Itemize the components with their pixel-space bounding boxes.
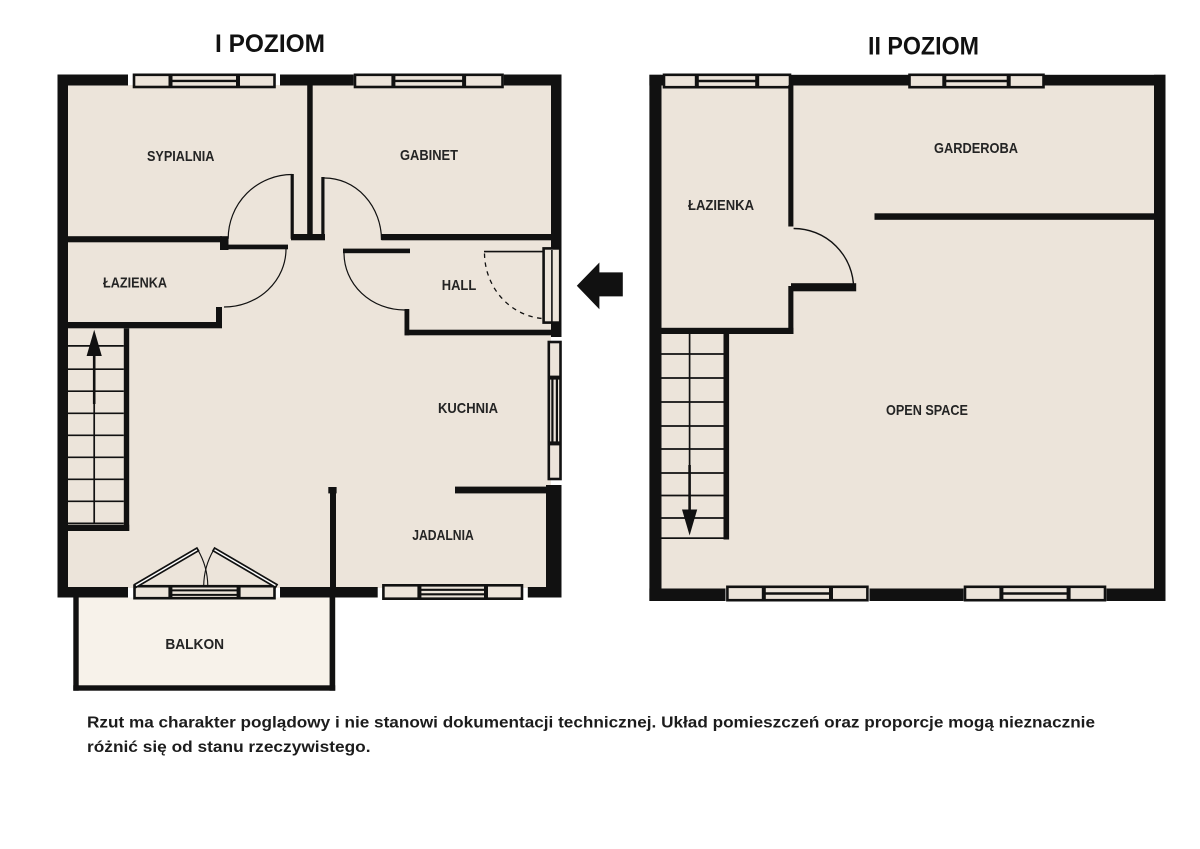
svg-text:ŁAZIENKA: ŁAZIENKA xyxy=(103,274,167,291)
svg-text:JADALNIA: JADALNIA xyxy=(412,527,474,544)
svg-text:II POZIOM: II POZIOM xyxy=(868,33,979,61)
svg-text:ŁAZIENKA: ŁAZIENKA xyxy=(688,197,754,214)
svg-text:I POZIOM: I POZIOM xyxy=(215,30,325,58)
svg-text:GABINET: GABINET xyxy=(400,147,458,164)
svg-text:SYPIALNIA: SYPIALNIA xyxy=(147,148,215,165)
svg-text:różnić się od stanu rzeczywist: różnić się od stanu rzeczywistego. xyxy=(87,739,371,756)
svg-text:OPEN SPACE: OPEN SPACE xyxy=(886,402,968,419)
svg-text:HALL: HALL xyxy=(442,277,477,294)
svg-text:GARDEROBA: GARDEROBA xyxy=(934,140,1018,157)
svg-text:KUCHNIA: KUCHNIA xyxy=(438,400,498,417)
svg-text:Rzut ma charakter poglądowy i: Rzut ma charakter poglądowy i nie stanow… xyxy=(87,715,1095,732)
svg-text:BALKON: BALKON xyxy=(165,636,224,653)
